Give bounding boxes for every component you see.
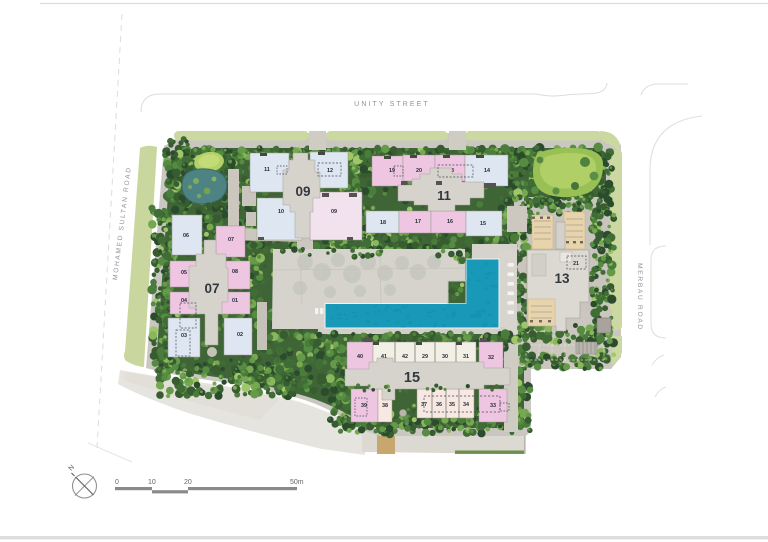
svg-text:07: 07 [228,237,234,243]
svg-text:11: 11 [264,167,270,173]
svg-text:14: 14 [484,168,490,174]
svg-text:10: 10 [278,209,284,215]
svg-text:35: 35 [449,402,455,408]
svg-text:09: 09 [295,184,310,199]
svg-text:08: 08 [232,269,238,275]
svg-text:30: 30 [442,354,448,360]
svg-text:36: 36 [436,402,442,408]
svg-text:16: 16 [447,219,453,225]
svg-text:34: 34 [463,402,469,408]
svg-text:05: 05 [181,270,187,276]
svg-text:38: 38 [382,403,388,409]
svg-text:MERBAU ROAD: MERBAU ROAD [636,263,643,331]
svg-text:UNITY STREET: UNITY STREET [354,101,430,108]
svg-text:N: N [68,464,77,473]
svg-text:11: 11 [437,188,451,203]
svg-text:31: 31 [463,354,469,360]
svg-text:MOHAMED SULTAN ROAD: MOHAMED SULTAN ROAD [112,166,133,280]
svg-text:17: 17 [415,219,421,225]
svg-text:10: 10 [148,479,156,486]
svg-text:40: 40 [357,354,363,360]
svg-text:42: 42 [402,354,408,360]
svg-text:15: 15 [480,221,486,227]
svg-text:20: 20 [184,479,192,486]
svg-text:20: 20 [416,168,422,174]
svg-text:32: 32 [488,355,494,361]
svg-text:12: 12 [327,168,333,174]
svg-text:01: 01 [232,298,238,304]
svg-text:13: 13 [554,271,570,286]
svg-text:06: 06 [183,233,189,239]
svg-text:33: 33 [490,403,496,409]
svg-text:29: 29 [422,354,428,360]
svg-text:0: 0 [115,479,119,486]
svg-text:07: 07 [204,281,219,296]
svg-text:18: 18 [380,220,386,226]
svg-text:02: 02 [237,332,243,338]
svg-text:50m: 50m [290,479,304,486]
svg-text:09: 09 [331,209,337,215]
svg-text:21: 21 [573,261,579,267]
svg-text:03: 03 [181,333,187,339]
svg-text:39: 39 [361,403,367,409]
svg-text:15: 15 [404,370,420,386]
